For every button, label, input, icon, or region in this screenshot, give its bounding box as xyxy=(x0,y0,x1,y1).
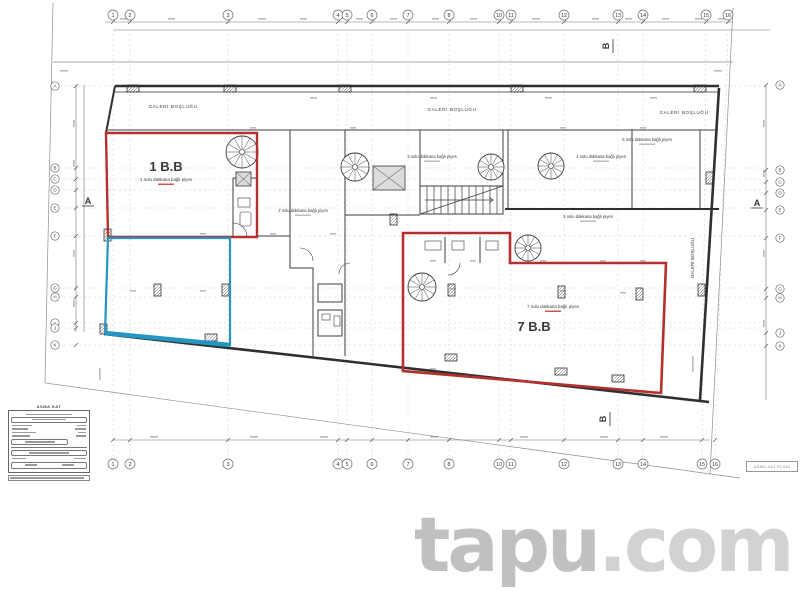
dimension-text xyxy=(330,233,336,235)
dimension-text xyxy=(73,160,75,167)
unit-area-text xyxy=(158,184,174,186)
parcel-boundary xyxy=(45,3,740,478)
grid-bubble-left-E: E xyxy=(53,206,56,211)
grid-bubble-top-15: 15 xyxy=(703,13,709,19)
dimension-text xyxy=(250,436,258,438)
dimension-text xyxy=(520,436,528,438)
gallery-void-label-1: GALERİ BOŞLUĞU xyxy=(428,106,477,112)
grid-bubble-left-G: G xyxy=(53,286,57,291)
column-mark xyxy=(612,375,624,382)
grid-bubble-bottom-4: 4 xyxy=(336,462,339,468)
room-label-4: 6 nolu dükkana bağlı piyes xyxy=(622,137,672,142)
dimension-text xyxy=(763,250,765,257)
unit-title-1bb: 1 B.B xyxy=(149,159,182,174)
title-block-header: ASMA KAT xyxy=(8,404,90,409)
watermark-brand: tapu xyxy=(414,500,598,589)
dimension-text xyxy=(592,18,599,20)
grid-bubble-top-4: 4 xyxy=(336,13,339,19)
grid-bubble-top-1: 1 xyxy=(111,13,114,19)
column-mark xyxy=(698,284,705,296)
grid-bubble-top-14: 14 xyxy=(640,13,646,19)
dimension-text xyxy=(432,18,439,20)
dimension-text xyxy=(763,320,765,327)
room-area-text xyxy=(295,215,311,216)
grid-bubble-top-8: 8 xyxy=(447,13,450,19)
column-mark xyxy=(154,284,161,296)
column-mark xyxy=(448,284,455,296)
drawing-canvas: A A B B 11223344556677881010111112121313… xyxy=(0,0,800,600)
grid-bubble-bottom-14: 14 xyxy=(640,462,646,468)
unit-title-7bb: 7 B.B xyxy=(517,319,550,334)
title-block: ASMA KAT xyxy=(8,404,90,481)
dimension-text xyxy=(200,290,206,292)
spiral-stair xyxy=(515,235,541,261)
dimension-text xyxy=(640,127,646,129)
dim-tick xyxy=(713,438,717,442)
column-mark xyxy=(222,284,229,296)
column-mark xyxy=(511,85,523,92)
grid-bubble-bottom-1: 1 xyxy=(111,462,114,468)
column-mark xyxy=(636,288,643,300)
grid-bubble-top-7: 7 xyxy=(406,13,409,19)
dimension-text xyxy=(250,127,256,129)
grid-bubble-right-E: E xyxy=(778,208,781,213)
dimension-text xyxy=(73,120,75,127)
grid-bubble-right-H: H xyxy=(778,296,781,301)
dimension-text xyxy=(545,97,552,99)
dimension-text xyxy=(430,97,437,99)
dimension-text xyxy=(430,436,438,438)
dimension-text xyxy=(714,70,722,72)
title-block-table xyxy=(8,410,90,473)
grid-bubble-right-J: J xyxy=(779,331,781,336)
grid-bubble-top-11: 11 xyxy=(508,13,514,19)
dimension-text xyxy=(390,18,397,20)
interior-walls xyxy=(108,130,718,358)
grid-bubble-left-F: F xyxy=(54,234,57,239)
grid-bubble-right-K: K xyxy=(778,344,781,349)
unit-area-text xyxy=(545,311,561,313)
dimension-text xyxy=(150,436,158,438)
section-marker-b-bottom: B xyxy=(598,415,608,422)
grid-bubble-bottom-10: 10 xyxy=(496,462,502,468)
grid-bubble-bottom-6: 6 xyxy=(370,462,373,468)
grid-bubble-top-5: 5 xyxy=(345,13,348,19)
grid-bubble-bottom-15: 15 xyxy=(699,462,705,468)
grid-bubble-bottom-16: 16 xyxy=(712,462,718,468)
dimension-text xyxy=(168,18,175,20)
gallery-void-label-vertical: GALERİ BOŞLUĞU xyxy=(689,238,695,279)
dimension-text xyxy=(540,260,546,262)
grid-bubble-top-6: 6 xyxy=(370,13,373,19)
dimension-text xyxy=(560,290,566,292)
dimension-text xyxy=(625,18,632,20)
dimension-text xyxy=(430,260,436,262)
dimension-text xyxy=(650,97,657,99)
column-mark xyxy=(339,85,351,92)
column-mark xyxy=(555,368,567,375)
room-area-text xyxy=(593,161,609,162)
grid-bubble-bottom-8: 8 xyxy=(447,462,450,468)
dimension-text xyxy=(270,233,276,235)
dimension-text xyxy=(532,18,540,20)
room-area-text xyxy=(639,144,655,145)
dimension-text xyxy=(470,260,476,262)
dimension-text xyxy=(130,290,136,292)
dimension-text xyxy=(356,18,363,20)
dimension-text xyxy=(99,368,101,380)
unit-subtitle-7bb: 7 nolu dükkana bağlı piyes xyxy=(527,304,580,309)
spiral-stair xyxy=(408,273,436,301)
spiral-stair xyxy=(478,154,504,180)
dimension-text xyxy=(300,18,307,20)
column-mark xyxy=(558,286,565,298)
spiral-stair xyxy=(341,153,369,181)
plan-type-tag: ASMA KAT PLANI xyxy=(746,461,798,472)
grid-bubble-right-A: A xyxy=(778,83,781,88)
dimension-text xyxy=(310,97,317,99)
section-marker-a-right: A xyxy=(754,198,761,208)
dimension-text xyxy=(258,18,266,20)
dimension-text xyxy=(320,436,328,438)
dimension-text xyxy=(763,120,765,127)
grid-bubble-top-12: 12 xyxy=(561,13,567,19)
dimension-text xyxy=(640,260,646,262)
column-mark xyxy=(224,85,236,92)
grid-bubble-right-B: B xyxy=(778,168,781,173)
unit-subtitle-1bb: 1 nolu dükkana bağlı piyes xyxy=(140,177,193,182)
room-label-0: 2 nolu dükkana bağlı piyes xyxy=(278,208,328,213)
spiral-stair xyxy=(226,136,258,168)
dimension-text xyxy=(692,356,694,372)
grid-bubble-left-H: H xyxy=(53,295,56,300)
gallery-void-label-2: GALERİ BOŞLUĞU xyxy=(660,109,709,115)
grid-bubble-bottom-5: 5 xyxy=(345,462,348,468)
section-marker-a-left: A xyxy=(85,196,92,206)
column-mark xyxy=(127,85,139,92)
dimension-text xyxy=(450,288,456,290)
grid-bubble-bottom-13: 13 xyxy=(615,462,621,468)
dimension-text xyxy=(620,292,626,294)
column-mark xyxy=(390,214,397,225)
staircase xyxy=(420,186,503,214)
dimension-text xyxy=(600,436,608,438)
room-label-1: 3 nolu dükkana bağlı piyes xyxy=(407,154,457,159)
dimension-text xyxy=(73,300,75,307)
dimension-text xyxy=(763,170,765,177)
dimension-text xyxy=(470,18,477,20)
grid-bubble-top-10: 10 xyxy=(496,13,502,19)
room-label-3: 5 nolu dükkana bağlı piyes xyxy=(563,214,613,219)
room-label-2: 4 nolu dükkana bağlı piyes xyxy=(576,154,626,159)
grid-bubble-top-2: 2 xyxy=(128,13,131,19)
dimension-text xyxy=(350,127,356,129)
dimension-text xyxy=(430,368,436,370)
grid-bubble-top-13: 13 xyxy=(615,13,621,19)
grid-bubble-left-J: J xyxy=(54,326,56,331)
dimension-text xyxy=(660,436,668,438)
grid-bubble-bottom-2: 2 xyxy=(128,462,131,468)
column-mark xyxy=(694,85,706,92)
dimension-text xyxy=(695,18,702,20)
dimension-text xyxy=(60,70,68,72)
grid-bubble-bottom-11: 11 xyxy=(508,462,514,468)
grid-centerline-15 xyxy=(702,34,706,456)
gallery-void-label-0: GALERİ BOŞLUĞU xyxy=(149,103,198,109)
dimension-text xyxy=(73,250,75,257)
title-block-caption xyxy=(8,475,90,481)
grid-bubble-bottom-12: 12 xyxy=(561,462,567,468)
grid-bubble-left-A: A xyxy=(53,84,56,89)
grid-bubble-bottom-7: 7 xyxy=(406,462,409,468)
column-mark xyxy=(445,354,457,361)
section-marker-b-top: B xyxy=(601,42,611,49)
grid-bubble-top-3: 3 xyxy=(226,13,229,19)
grid-bubble-bottom-3: 3 xyxy=(226,462,229,468)
column-mark xyxy=(205,334,217,341)
blue-area-boundary xyxy=(105,238,230,345)
spiral-stair xyxy=(538,153,564,179)
watermark-tapu-com: tapu.com xyxy=(414,500,791,589)
grid-bubble-left-K: K xyxy=(53,343,56,348)
grid-bubble-left-B: B xyxy=(53,166,56,171)
dimension-text xyxy=(560,127,566,129)
dimension-text xyxy=(662,18,669,20)
grid-bubble-right-F: F xyxy=(779,236,782,241)
page: { "watermark": { "brand": "tapu", "tld":… xyxy=(0,0,800,600)
watermark-tld: .com xyxy=(598,500,791,589)
room-area-text xyxy=(424,161,440,162)
grid-bubble-right-G: G xyxy=(778,287,782,292)
room-area-text xyxy=(580,221,596,222)
column-mark xyxy=(706,172,713,184)
dimension-text xyxy=(600,260,606,262)
dimension-text xyxy=(200,233,206,235)
grid-bubble-top-16: 16 xyxy=(725,13,731,19)
